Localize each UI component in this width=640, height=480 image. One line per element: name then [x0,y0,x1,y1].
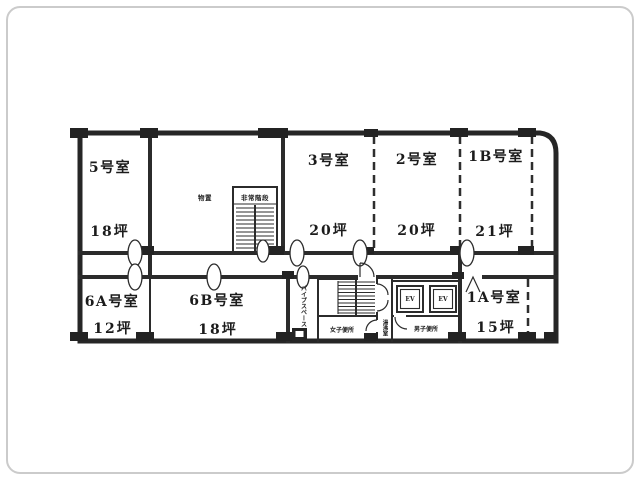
column [258,128,288,138]
room-1a-area: 15坪 [476,320,515,336]
room-3-area: 20坪 [309,223,348,239]
column [364,333,378,341]
floor-plan-page: 5号室 18坪 3号室 20坪 2号室 20坪 1B号室 21坪 6A号室 12… [0,0,640,480]
column [282,271,294,279]
column [544,332,556,341]
room-2-label: 2号室 [396,151,438,168]
column [70,332,88,341]
column [448,332,466,341]
column [276,332,292,341]
room-6a-area: 12坪 [93,321,132,337]
door-gap-stair-lobby [375,284,379,312]
main-stair [318,279,377,316]
column [364,129,378,137]
door-gap-mens-toilet [394,314,406,318]
door-room3-right [353,240,367,266]
room-1a-label: 1A号室 [467,289,522,306]
pipe-space-label: パイプスペース [300,284,307,327]
door-room6b [207,264,221,290]
column [452,272,464,279]
room-6a-label: 6A号室 [85,293,140,310]
column [518,246,534,255]
emergency-stair-label: 非常階段 [241,193,269,202]
column [140,128,158,138]
door-swing-mens-toilet [395,317,407,329]
elevator-2-label: EV [438,296,448,303]
womens-toilet-label: 女子便所 [330,326,354,334]
door-room5 [128,240,142,266]
column [70,128,88,138]
room-5-label: 5号室 [89,159,131,176]
door-gap-womens-toilet [375,320,379,332]
door-room3-left [290,240,304,266]
storage-label: 物置 [198,193,212,202]
mens-toilet-label: 男子便所 [414,325,438,333]
shaft-closet-inner [296,331,304,337]
kitchenette-label: 湯沸室 [382,319,389,338]
room-3-label: 3号室 [308,152,350,169]
column [450,128,468,137]
door-room6a [128,264,142,290]
room-1b-area: 21坪 [475,224,514,240]
floor-plan-drawing: 5号室 18坪 3号室 20坪 2号室 20坪 1B号室 21坪 6A号室 12… [0,0,640,480]
room-6b-label: 6B号室 [189,292,245,309]
column [136,332,154,341]
room-6b-area: 18坪 [198,322,237,338]
elevator-1-label: EV [405,296,415,303]
door-emergency-stair [257,240,269,262]
room-5-area: 18坪 [90,224,129,240]
column [518,128,536,137]
room-1b-label: 1B号室 [468,148,524,165]
column [518,332,536,341]
room-2-area: 20坪 [397,223,436,239]
door-room1b [460,240,474,266]
